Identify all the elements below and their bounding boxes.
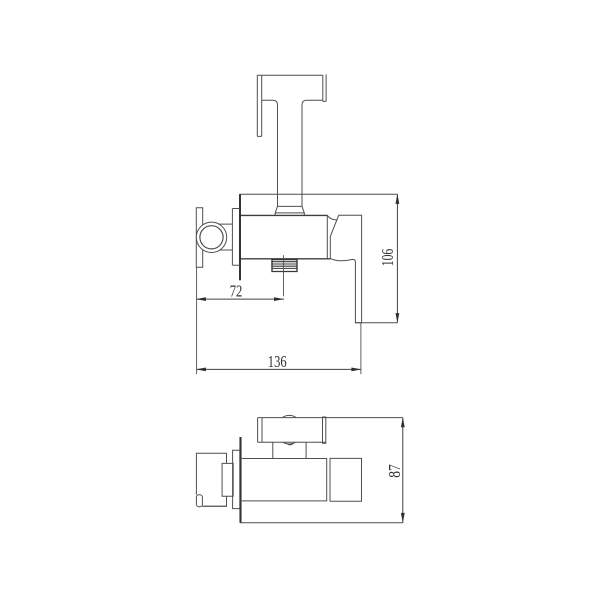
svg-text:72: 72 [230, 281, 243, 300]
svg-text:136: 136 [268, 352, 287, 371]
svg-text:106: 106 [378, 249, 397, 267]
svg-text:87: 87 [385, 464, 404, 478]
